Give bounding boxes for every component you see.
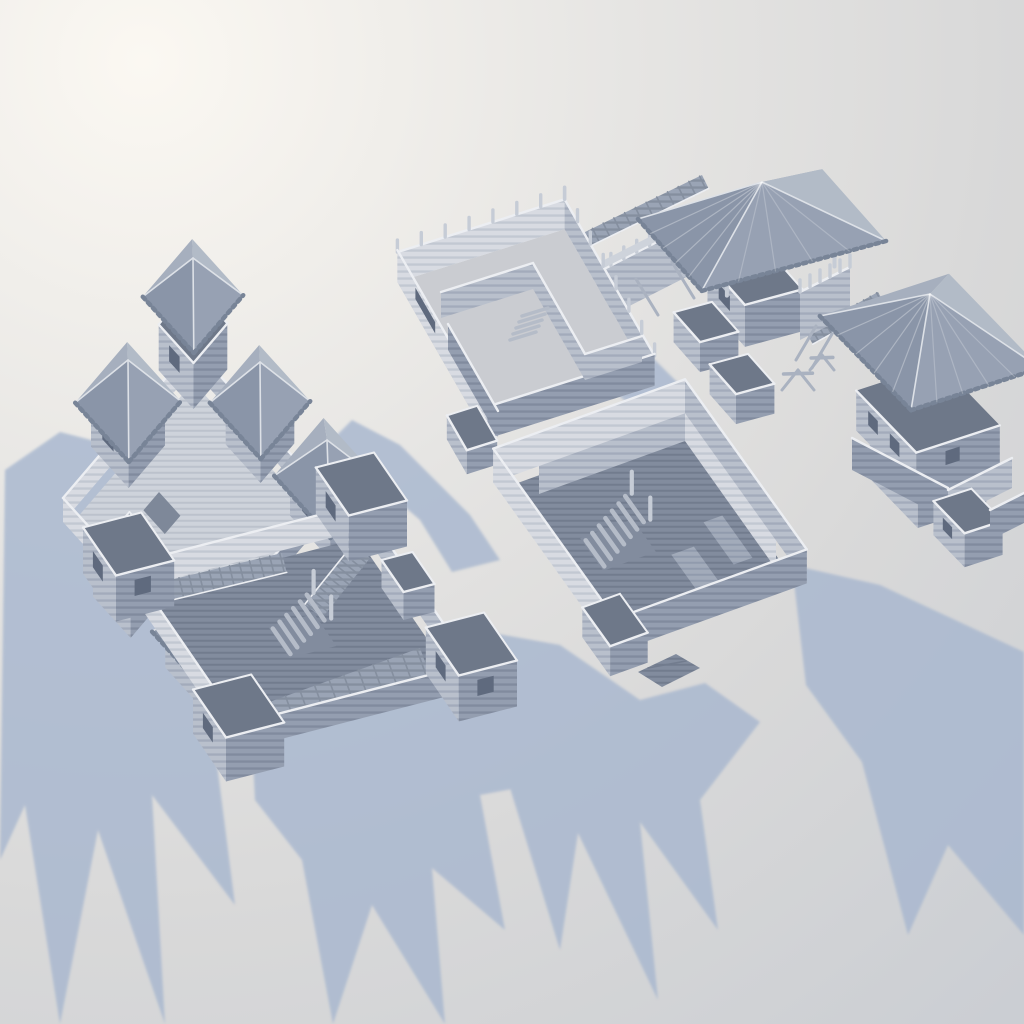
render-viewport: Modular wooden log fort terrain set — mo… (0, 0, 1024, 1024)
fort-render-scene: Modular wooden log fort terrain set — mo… (0, 0, 1024, 1024)
